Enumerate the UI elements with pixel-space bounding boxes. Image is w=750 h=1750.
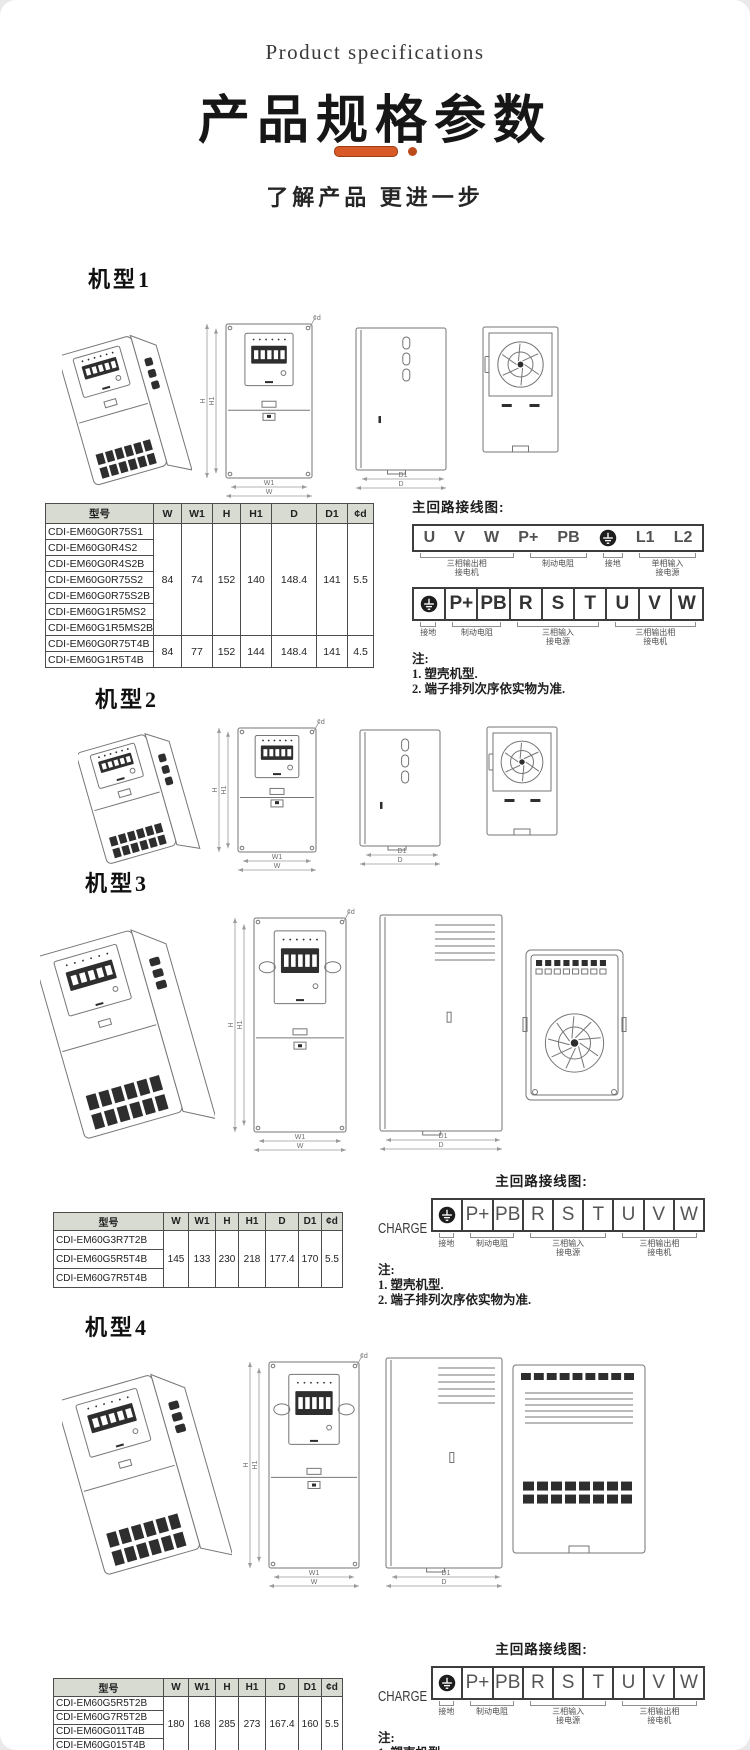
drawing-front-view: HH1W1W¢d: [228, 906, 356, 1159]
column-header: D: [272, 504, 317, 524]
model-number: CDI-EM60G5R5T2B: [54, 1697, 164, 1711]
svg-text:D1: D1: [399, 472, 408, 479]
terminal-label: P+: [461, 1200, 491, 1230]
drawing-front-view: HH1W1W¢d: [243, 1350, 369, 1595]
ground-icon: [438, 1674, 456, 1692]
terminal-group-label: 接地: [431, 1701, 461, 1716]
dimension-value: 273: [239, 1697, 266, 1750]
model4-heading: 机型4: [85, 1310, 149, 1342]
column-header: ¢d: [348, 504, 374, 524]
terminal-label: PB: [476, 589, 508, 619]
column-header: H1: [241, 504, 272, 524]
svg-text:H: H: [243, 1462, 250, 1467]
terminal-group-label: 单相输入接电源: [631, 553, 704, 577]
drawing-iso-view: [40, 902, 215, 1162]
drawing-rear-view: [508, 1360, 650, 1563]
terminal-label: U: [424, 529, 436, 547]
terminal-label: W: [484, 529, 499, 547]
wiring-title: 主回路接线图:: [378, 1170, 705, 1190]
page-subtitle: 了解产品 更进一步: [0, 180, 750, 212]
drawing-iso-view: [62, 1348, 232, 1597]
terminal-strip-block: UVWP+PBL1L2三相输出相接电机制动电阻接地单相输入接电源: [412, 524, 704, 579]
terminal-label: V: [454, 529, 465, 547]
svg-text:W: W: [266, 489, 273, 496]
terminal-label: P+: [444, 589, 476, 619]
model-number: CDI-EM60G1R5MS2B: [46, 620, 154, 636]
ground-terminal: [414, 589, 444, 619]
dimension-value: 230: [216, 1231, 239, 1288]
model3-drawings: HH1W1W¢dD1D: [0, 898, 750, 1160]
column-header: W1: [189, 1213, 216, 1231]
drawing-iso-view: [62, 316, 192, 503]
column-header: W: [164, 1679, 189, 1697]
svg-text:¢d: ¢d: [347, 909, 355, 916]
drawing-iso-view: [78, 718, 202, 879]
column-header: D: [266, 1213, 299, 1231]
dimension-value: 133: [189, 1231, 216, 1288]
terminal-label: L1: [636, 529, 655, 547]
model-number: CDI-EM60G0R4S2: [46, 540, 154, 556]
charge-label: CHARGE: [378, 1221, 427, 1236]
terminal-group-label: 三相输入接电源: [522, 1701, 613, 1725]
model-number: CDI-EM60G7R5T2B: [54, 1711, 164, 1725]
dimension-value: 152: [213, 636, 241, 668]
svg-text:D: D: [441, 1579, 446, 1586]
terminal-group-label: 制动电阻: [444, 622, 509, 637]
dimension-value: 145: [164, 1231, 189, 1288]
terminal-label: V: [638, 589, 670, 619]
wiring-title: 主回路接线图:: [412, 496, 704, 516]
svg-text:D1: D1: [398, 848, 407, 855]
svg-text:¢d: ¢d: [360, 1353, 368, 1360]
dimension-value: 152: [213, 524, 241, 636]
svg-text:W: W: [274, 863, 281, 870]
model4-drawings: HH1W1W¢dD1D: [0, 1344, 750, 1594]
dimension-value: 167.4: [266, 1697, 299, 1750]
drawing-side-view: D1D: [352, 718, 450, 873]
wiring-notes: 注:1. 塑壳机型.2. 端子排列次序依实物为准.: [378, 1731, 705, 1750]
drawing-side-view: D1D: [348, 316, 456, 497]
terminal-label: T: [573, 589, 605, 619]
terminal-strip: UVWP+PBL1L2: [412, 524, 704, 552]
terminal-label: W: [673, 1668, 703, 1698]
terminal-label: R: [522, 1668, 552, 1698]
drawing-rear-view: [522, 946, 627, 1109]
model2-drawings: HH1W1W¢dD1D: [0, 716, 750, 876]
column-header: D1: [299, 1213, 322, 1231]
terminal-label: P+: [518, 529, 538, 547]
terminal-strip-block: P+PBRSTUVW接地制动电阻三相输入接电源三相输出相接电机: [412, 587, 704, 648]
column-header: H: [216, 1679, 239, 1697]
terminal-label: W: [670, 589, 702, 619]
terminal-group-label: 三相输入接电源: [509, 622, 606, 646]
svg-text:¢d: ¢d: [317, 719, 325, 726]
model1-heading: 机型1: [88, 262, 152, 294]
dimension-value: 74: [182, 524, 213, 636]
ground-terminal: [433, 1668, 461, 1698]
terminal-label: T: [582, 1668, 612, 1698]
ground-icon: [438, 1206, 456, 1224]
product-spec-page: Product specifications 产品规格参数 了解产品 更进一步 …: [0, 0, 750, 1750]
terminal-label: U: [605, 589, 637, 619]
terminal-label: U: [612, 1200, 642, 1230]
terminal-label: U: [612, 1668, 642, 1698]
column-header: W: [154, 504, 182, 524]
model-number: CDI-EM60G7R5T4B: [54, 1269, 164, 1288]
model3-table-area: 型号WW1HH1DD1¢dCDI-EM60G3R7T2B145133230218…: [53, 1212, 343, 1288]
model-number: CDI-EM60G0R75S2: [46, 572, 154, 588]
terminal-label: R: [522, 1200, 552, 1230]
drawing-rear-view: [482, 722, 562, 845]
model4-table-area: 型号WW1HH1DD1¢dCDI-EM60G5R5T2B180168285273…: [53, 1678, 343, 1750]
column-header: H1: [239, 1679, 266, 1697]
table-row: CDI-EM60G5R5T2B180168285273167.41605.5: [54, 1697, 343, 1711]
svg-text:H: H: [212, 787, 219, 792]
terminal-label: PB: [492, 1200, 522, 1230]
column-header: 型号: [46, 504, 154, 524]
dimension-value: 285: [216, 1697, 239, 1750]
column-header: W1: [182, 504, 213, 524]
model2-heading: 机型2: [95, 682, 159, 714]
wiring-title: 主回路接线图:: [378, 1638, 705, 1658]
drawing-side-view: D1D: [372, 903, 512, 1158]
column-header: D1: [317, 504, 348, 524]
svg-text:H1: H1: [252, 1460, 259, 1469]
terminal-group-label: 三相输出相接电机: [614, 1233, 705, 1257]
model4-wiring-area: 主回路接线图:CHARGEP+PBRSTUVW接地制动电阻三相输入接电源三相输出…: [378, 1638, 705, 1750]
svg-text:D1: D1: [439, 1133, 448, 1140]
model-number: CDI-EM60G0R4S2B: [46, 556, 154, 572]
terminal-group-label: 三相输出相接电机: [607, 622, 704, 646]
dimension-value: 148.4: [272, 524, 317, 636]
column-header: W1: [189, 1679, 216, 1697]
terminal-label: S: [552, 1668, 582, 1698]
dimension-value: 218: [239, 1231, 266, 1288]
ground-terminal: [599, 529, 617, 547]
svg-text:D1: D1: [442, 1570, 451, 1577]
column-header: D1: [299, 1679, 322, 1697]
model-number: CDI-EM60G011T4B: [54, 1725, 164, 1739]
spec-table: 型号WW1HH1DD1¢dCDI-EM60G5R5T2B180168285273…: [53, 1678, 343, 1750]
terminal-label: R: [509, 589, 541, 619]
terminal-group-label: 三相输出相接电机: [614, 1701, 705, 1725]
terminal-group-label: 三相输入接电源: [522, 1233, 613, 1257]
terminal-label: L2: [674, 529, 693, 547]
model-number: CDI-EM60G1R5T4B: [46, 652, 154, 668]
column-header: W: [164, 1213, 189, 1231]
table-row: CDI-EM60G3R7T2B145133230218177.41705.5: [54, 1231, 343, 1250]
column-header: H: [213, 504, 241, 524]
terminal-label: W: [673, 1200, 703, 1230]
terminal-group-label: 接地: [431, 1233, 461, 1248]
column-header: H: [216, 1213, 239, 1231]
terminal-label: V: [643, 1200, 673, 1230]
dimension-value: 77: [182, 636, 213, 668]
eyebrow-text: Product specifications: [0, 40, 750, 65]
terminal-group-label: 制动电阻: [462, 1233, 523, 1248]
spec-table: 型号WW1HH1DD1¢dCDI-EM60G3R7T2B145133230218…: [53, 1212, 343, 1288]
model-number: CDI-EM60G5R5T4B: [54, 1250, 164, 1269]
dimension-value: 84: [154, 636, 182, 668]
model1-table-area: 型号WW1HH1DD1¢dCDI-EM60G0R75S1847415214014…: [45, 503, 374, 668]
svg-text:D: D: [397, 857, 402, 864]
terminal-label: PB: [492, 1668, 522, 1698]
table-row: CDI-EM60G0R75T4B8477152144148.41414.5: [46, 636, 374, 652]
drawing-front-view: HH1W1W¢d: [200, 312, 322, 505]
dimension-value: 148.4: [272, 636, 317, 668]
ground-icon: [599, 529, 617, 547]
terminal-group-label: 接地: [595, 553, 632, 568]
dimension-value: 177.4: [266, 1231, 299, 1288]
svg-text:¢d: ¢d: [313, 315, 321, 322]
drawing-rear-view: [478, 322, 563, 462]
dimension-value: 160: [299, 1697, 322, 1750]
ground-icon: [420, 595, 438, 613]
terminal-group-label: 三相输出相接电机: [412, 553, 522, 577]
model-number: CDI-EM60G3R7T2B: [54, 1231, 164, 1250]
drawing-side-view: D1D: [378, 1346, 512, 1595]
model1-wiring-area: 主回路接线图:UVWP+PBL1L2三相输出相接电机制动电阻接地单相输入接电源P…: [412, 496, 704, 696]
model-number: CDI-EM60G1R5MS2: [46, 604, 154, 620]
column-header: D: [266, 1679, 299, 1697]
dimension-value: 84: [154, 524, 182, 636]
page-title: 产品规格参数: [0, 78, 750, 153]
column-header: ¢d: [322, 1213, 343, 1231]
dimension-value: 180: [164, 1697, 189, 1750]
terminal-strip: P+PBRSTUVW: [412, 587, 704, 621]
terminal-label: P+: [461, 1668, 491, 1698]
dimension-value: 4.5: [348, 636, 374, 668]
model1-drawings: HH1W1W¢dD1D: [0, 312, 750, 502]
spec-table: 型号WW1HH1DD1¢dCDI-EM60G0R75S1847415214014…: [45, 503, 374, 668]
model3-wiring-area: 主回路接线图:CHARGEP+PBRSTUVW接地制动电阻三相输入接电源三相输出…: [378, 1170, 705, 1307]
model-number: CDI-EM60G015T4B: [54, 1739, 164, 1750]
terminal-label: S: [541, 589, 573, 619]
column-header: 型号: [54, 1679, 164, 1697]
accent-dot: [408, 147, 417, 156]
svg-text:W: W: [311, 1579, 318, 1586]
svg-text:H1: H1: [237, 1020, 244, 1029]
svg-text:W1: W1: [264, 480, 275, 487]
svg-text:H1: H1: [221, 785, 228, 794]
wiring-notes: 注:1. 塑壳机型.2. 端子排列次序依实物为准.: [412, 652, 704, 696]
dimension-value: 5.5: [322, 1231, 343, 1288]
svg-text:W1: W1: [309, 1570, 320, 1577]
terminal-group-label: 制动电阻: [522, 553, 595, 568]
model-number: CDI-EM60G0R75T4B: [46, 636, 154, 652]
accent-bar: [334, 146, 398, 157]
column-header: ¢d: [322, 1679, 343, 1697]
terminal-group-label: 制动电阻: [462, 1701, 523, 1716]
column-header: H1: [239, 1213, 266, 1231]
model-number: CDI-EM60G0R75S1: [46, 524, 154, 540]
terminal-strip-block: CHARGEP+PBRSTUVW接地制动电阻三相输入接电源三相输出相接电机: [378, 1198, 705, 1259]
dimension-value: 141: [317, 524, 348, 636]
svg-text:H: H: [228, 1022, 235, 1027]
column-header: 型号: [54, 1213, 164, 1231]
svg-text:W: W: [297, 1143, 304, 1150]
dimension-value: 140: [241, 524, 272, 636]
model3-heading: 机型3: [85, 866, 149, 898]
table-row: CDI-EM60G0R75S18474152140148.41415.5: [46, 524, 374, 540]
svg-text:H1: H1: [209, 396, 216, 405]
dimension-value: 170: [299, 1231, 322, 1288]
svg-text:H: H: [200, 398, 207, 403]
dimension-value: 5.5: [348, 524, 374, 636]
dimension-value: 5.5: [322, 1697, 343, 1750]
terminal-label: T: [582, 1200, 612, 1230]
model-number: CDI-EM60G0R75S2B: [46, 588, 154, 604]
dimension-value: 168: [189, 1697, 216, 1750]
terminal-strip: P+PBRSTUVW: [431, 1666, 705, 1700]
svg-text:W1: W1: [295, 1134, 306, 1141]
terminal-label: V: [643, 1668, 673, 1698]
terminal-strip: P+PBRSTUVW: [431, 1198, 705, 1232]
svg-text:W1: W1: [272, 854, 283, 861]
wiring-notes: 注:1. 塑壳机型.2. 端子排列次序依实物为准.: [378, 1263, 705, 1307]
terminal-strip-block: CHARGEP+PBRSTUVW接地制动电阻三相输入接电源三相输出相接电机: [378, 1666, 705, 1727]
svg-text:D: D: [438, 1142, 443, 1149]
accent-divider: [0, 146, 750, 157]
ground-terminal: [433, 1200, 461, 1230]
svg-text:D: D: [398, 481, 403, 488]
charge-label: CHARGE: [378, 1689, 427, 1704]
dimension-value: 144: [241, 636, 272, 668]
terminal-label: S: [552, 1200, 582, 1230]
terminal-label: PB: [557, 529, 579, 547]
dimension-value: 141: [317, 636, 348, 668]
terminal-group-label: 接地: [412, 622, 444, 637]
drawing-front-view: HH1W1W¢d: [212, 716, 326, 879]
